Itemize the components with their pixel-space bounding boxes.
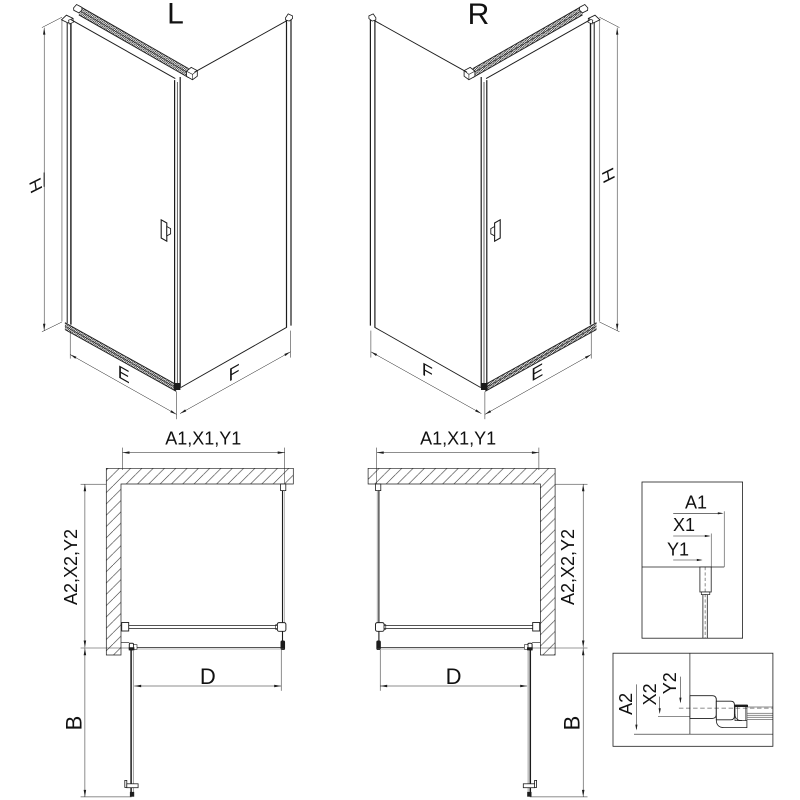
svg-text:A1: A1: [685, 492, 707, 512]
svg-text:Y1: Y1: [667, 540, 689, 560]
svg-text:A2,X2,Y2: A2,X2,Y2: [61, 529, 81, 605]
svg-text:X1: X1: [673, 515, 695, 535]
svg-text:B: B: [61, 716, 86, 731]
svg-text:L: L: [167, 0, 184, 31]
svg-text:D: D: [446, 664, 462, 689]
svg-text:Y2: Y2: [660, 672, 680, 694]
svg-text:A1,X1,Y1: A1,X1,Y1: [165, 429, 241, 449]
svg-text:R: R: [468, 0, 490, 31]
svg-text:B: B: [560, 716, 585, 731]
svg-text:A1,X1,Y1: A1,X1,Y1: [420, 429, 496, 449]
svg-text:X2: X2: [640, 683, 660, 705]
svg-text:A2,X2,Y2: A2,X2,Y2: [558, 529, 578, 605]
svg-text:A2: A2: [616, 693, 636, 715]
svg-text:D: D: [200, 664, 216, 689]
